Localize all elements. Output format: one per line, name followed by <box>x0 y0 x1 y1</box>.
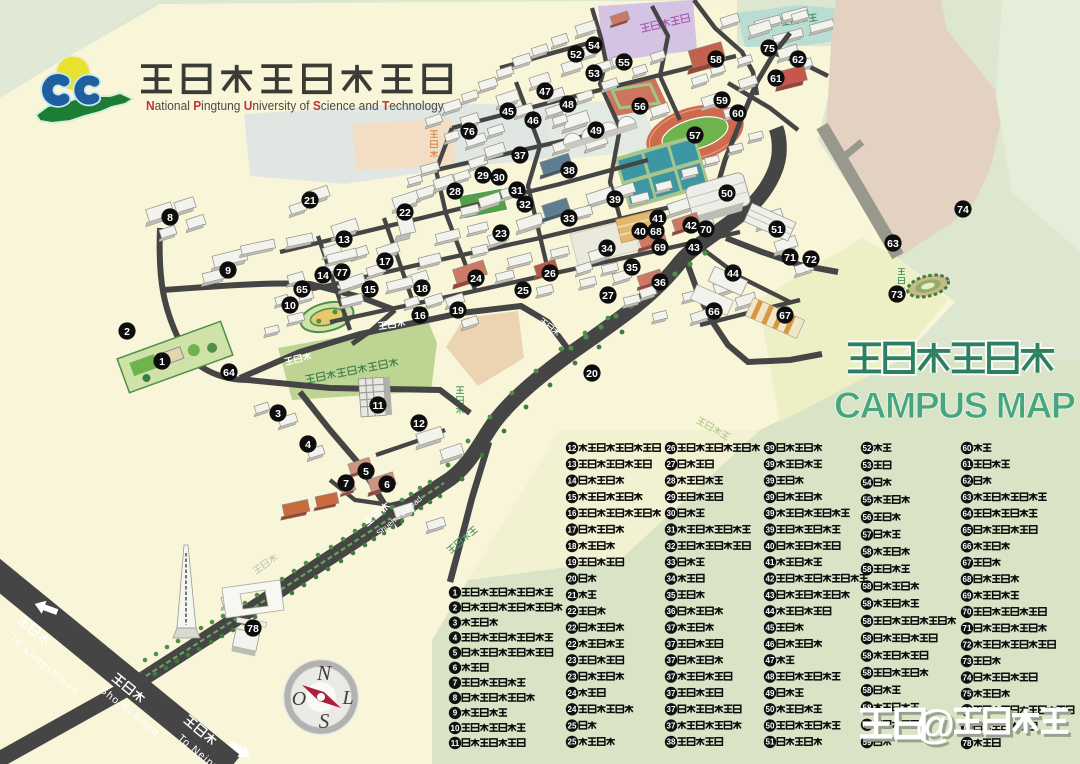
svg-text:68: 68 <box>650 226 662 238</box>
svg-text:50: 50 <box>766 721 775 730</box>
svg-text:10: 10 <box>284 300 296 312</box>
svg-text:39: 39 <box>609 194 621 206</box>
svg-text:24: 24 <box>568 705 577 714</box>
svg-text:65: 65 <box>963 526 972 535</box>
svg-text:34: 34 <box>667 574 676 583</box>
svg-text:42: 42 <box>766 574 775 583</box>
svg-text:9: 9 <box>453 709 458 718</box>
svg-text:55: 55 <box>863 496 872 505</box>
svg-text:50: 50 <box>766 705 775 714</box>
svg-text:41: 41 <box>766 558 775 567</box>
svg-text:65: 65 <box>296 284 308 296</box>
svg-text:75: 75 <box>763 43 775 55</box>
svg-text:64: 64 <box>223 367 235 379</box>
svg-text:37: 37 <box>514 150 526 162</box>
svg-text:57: 57 <box>863 530 872 539</box>
svg-text:60: 60 <box>963 444 972 453</box>
svg-text:50: 50 <box>721 188 733 200</box>
svg-text:19: 19 <box>568 558 577 567</box>
svg-text:25: 25 <box>568 738 577 747</box>
svg-text:45: 45 <box>502 106 514 118</box>
svg-text:24: 24 <box>470 273 482 285</box>
svg-text:14: 14 <box>317 270 329 282</box>
svg-text:68: 68 <box>963 575 972 584</box>
svg-text:46: 46 <box>527 115 539 127</box>
svg-text:12: 12 <box>413 418 425 430</box>
svg-text:58: 58 <box>863 600 872 609</box>
svg-text:39: 39 <box>766 509 775 518</box>
svg-text:2: 2 <box>453 603 458 612</box>
svg-text:31: 31 <box>511 185 523 197</box>
svg-text:66: 66 <box>708 306 720 318</box>
svg-text:39: 39 <box>766 444 775 453</box>
svg-text:20: 20 <box>586 368 598 380</box>
svg-text:22: 22 <box>399 207 411 219</box>
svg-text:12: 12 <box>568 444 577 453</box>
svg-text:74: 74 <box>957 204 969 216</box>
svg-text:70: 70 <box>700 224 712 236</box>
svg-text:52: 52 <box>570 49 582 61</box>
svg-text:37: 37 <box>667 623 676 632</box>
svg-text:22: 22 <box>568 640 577 649</box>
svg-text:72: 72 <box>963 641 972 650</box>
svg-text:66: 66 <box>963 542 972 551</box>
svg-text:58: 58 <box>863 617 872 626</box>
svg-text:34: 34 <box>601 243 613 255</box>
svg-text:16: 16 <box>568 509 577 518</box>
svg-text:27: 27 <box>602 290 614 302</box>
svg-text:11: 11 <box>451 739 460 748</box>
svg-text:4: 4 <box>305 439 311 451</box>
svg-text:21: 21 <box>304 195 316 207</box>
svg-text:39: 39 <box>766 477 775 486</box>
svg-text:15: 15 <box>568 493 577 502</box>
svg-text:27: 27 <box>667 460 676 469</box>
svg-text:77: 77 <box>336 267 348 279</box>
svg-text:O: O <box>292 688 306 710</box>
svg-text:18: 18 <box>568 542 577 551</box>
svg-text:60: 60 <box>732 108 744 120</box>
svg-text:58: 58 <box>863 582 872 591</box>
svg-text:18: 18 <box>416 283 428 295</box>
svg-text:69: 69 <box>963 591 972 600</box>
svg-text:44: 44 <box>727 268 739 280</box>
svg-text:37: 37 <box>667 656 676 665</box>
svg-text:62: 62 <box>963 477 972 486</box>
svg-text:64: 64 <box>963 509 972 518</box>
svg-text:52: 52 <box>863 444 872 453</box>
svg-text:37: 37 <box>667 640 676 649</box>
svg-text:15: 15 <box>364 284 376 296</box>
svg-text:30: 30 <box>667 509 676 518</box>
svg-text:58: 58 <box>863 669 872 678</box>
svg-text:5: 5 <box>363 466 369 478</box>
svg-text:71: 71 <box>784 252 796 264</box>
svg-text:23: 23 <box>568 656 577 665</box>
svg-text:28: 28 <box>449 186 461 198</box>
svg-text:7: 7 <box>453 679 458 688</box>
svg-text:6: 6 <box>453 664 458 673</box>
svg-text:14: 14 <box>568 477 577 486</box>
svg-text:25: 25 <box>568 721 577 730</box>
svg-text:63: 63 <box>963 493 972 502</box>
svg-text:37: 37 <box>667 672 676 681</box>
svg-text:31: 31 <box>667 525 676 534</box>
svg-text:58: 58 <box>710 54 722 66</box>
svg-text:9: 9 <box>225 265 231 277</box>
svg-text:38: 38 <box>563 165 575 177</box>
svg-text:7: 7 <box>343 478 349 490</box>
svg-text:17: 17 <box>379 256 391 268</box>
svg-text:47: 47 <box>539 86 551 98</box>
svg-text:8: 8 <box>453 694 458 703</box>
svg-text:51: 51 <box>766 738 775 747</box>
svg-text:11: 11 <box>372 400 383 412</box>
svg-text:37: 37 <box>667 705 676 714</box>
svg-text:29: 29 <box>477 170 489 182</box>
svg-text:2: 2 <box>124 326 130 338</box>
svg-text:58: 58 <box>863 565 872 574</box>
svg-text:61: 61 <box>963 460 972 469</box>
svg-text:L: L <box>341 687 353 709</box>
svg-text:57: 57 <box>689 130 701 142</box>
svg-text:5: 5 <box>453 649 458 658</box>
svg-text:58: 58 <box>863 651 872 660</box>
svg-text:54: 54 <box>588 40 600 52</box>
svg-text:62: 62 <box>792 54 804 66</box>
svg-text:29: 29 <box>667 493 676 502</box>
svg-text:51: 51 <box>771 224 783 236</box>
svg-text:19: 19 <box>452 305 464 317</box>
svg-text:56: 56 <box>634 101 646 113</box>
svg-text:38: 38 <box>667 738 676 747</box>
svg-text:46: 46 <box>766 640 775 649</box>
svg-text:13: 13 <box>338 234 350 246</box>
svg-text:3: 3 <box>275 408 281 420</box>
svg-text:49: 49 <box>766 689 775 698</box>
svg-text:40: 40 <box>634 226 646 238</box>
svg-text:25: 25 <box>517 285 529 297</box>
svg-text:48: 48 <box>562 99 574 111</box>
svg-text:23: 23 <box>495 228 507 240</box>
svg-text:National Pingtung University o: National Pingtung University of Science … <box>146 99 444 114</box>
svg-text:40: 40 <box>766 542 775 551</box>
svg-text:33: 33 <box>667 558 676 567</box>
svg-text:1: 1 <box>453 588 458 597</box>
svg-text:73: 73 <box>891 289 903 301</box>
svg-text:37: 37 <box>667 721 676 730</box>
svg-text:35: 35 <box>667 591 676 600</box>
svg-text:28: 28 <box>667 477 676 486</box>
svg-text:61: 61 <box>770 73 782 85</box>
svg-text:39: 39 <box>766 493 775 502</box>
svg-text:N: N <box>316 661 332 685</box>
svg-text:13: 13 <box>568 460 577 469</box>
svg-text:39: 39 <box>766 525 775 534</box>
svg-text:49: 49 <box>590 125 602 137</box>
svg-text:39: 39 <box>766 460 775 469</box>
svg-text:S: S <box>319 709 330 733</box>
svg-text:22: 22 <box>568 607 577 616</box>
svg-text:73: 73 <box>963 657 972 666</box>
svg-text:70: 70 <box>963 608 972 617</box>
svg-text:26: 26 <box>544 268 556 280</box>
svg-text:75: 75 <box>963 690 972 699</box>
svg-text:53: 53 <box>588 68 600 80</box>
svg-text:CAMPUS MAP: CAMPUS MAP <box>834 384 1075 426</box>
svg-text:24: 24 <box>568 689 577 698</box>
svg-text:78: 78 <box>963 739 972 748</box>
svg-text:32: 32 <box>519 199 531 211</box>
svg-text:71: 71 <box>963 624 972 633</box>
svg-text:17: 17 <box>568 525 577 534</box>
svg-text:30: 30 <box>493 172 505 184</box>
svg-text:10: 10 <box>451 724 460 733</box>
svg-text:55: 55 <box>618 57 630 69</box>
svg-text:44: 44 <box>766 607 775 616</box>
svg-text:23: 23 <box>568 672 577 681</box>
svg-text:42: 42 <box>685 220 697 232</box>
svg-text:58: 58 <box>863 686 872 695</box>
svg-text:1: 1 <box>159 356 165 368</box>
svg-text:35: 35 <box>626 262 638 274</box>
svg-text:56: 56 <box>863 513 872 522</box>
svg-text:78: 78 <box>247 623 259 635</box>
svg-text:@: @ <box>915 701 955 747</box>
svg-text:26: 26 <box>667 444 676 453</box>
svg-text:59: 59 <box>716 95 728 107</box>
svg-text:43: 43 <box>766 591 775 600</box>
svg-text:36: 36 <box>667 607 676 616</box>
svg-text:6: 6 <box>384 479 390 491</box>
svg-text:74: 74 <box>963 673 972 682</box>
svg-text:32: 32 <box>667 542 676 551</box>
svg-text:36: 36 <box>654 277 666 289</box>
svg-text:69: 69 <box>654 242 666 254</box>
svg-text:43: 43 <box>688 242 700 254</box>
svg-text:76: 76 <box>463 126 475 138</box>
svg-text:53: 53 <box>863 461 872 470</box>
svg-text:8: 8 <box>167 212 173 224</box>
svg-text:54: 54 <box>863 478 872 487</box>
svg-text:45: 45 <box>766 623 775 632</box>
svg-text:21: 21 <box>568 591 577 600</box>
svg-text:37: 37 <box>667 689 676 698</box>
svg-text:63: 63 <box>887 238 899 250</box>
svg-text:72: 72 <box>805 254 817 266</box>
svg-text:22: 22 <box>568 623 577 632</box>
svg-text:16: 16 <box>414 310 426 322</box>
svg-text:58: 58 <box>863 634 872 643</box>
svg-text:58: 58 <box>863 548 872 557</box>
svg-text:48: 48 <box>766 672 775 681</box>
svg-text:33: 33 <box>563 213 575 225</box>
svg-text:3: 3 <box>453 618 458 627</box>
svg-text:20: 20 <box>568 574 577 583</box>
svg-text:67: 67 <box>779 310 791 322</box>
svg-text:4: 4 <box>453 633 458 642</box>
svg-text:47: 47 <box>766 656 775 665</box>
svg-text:67: 67 <box>963 559 972 568</box>
